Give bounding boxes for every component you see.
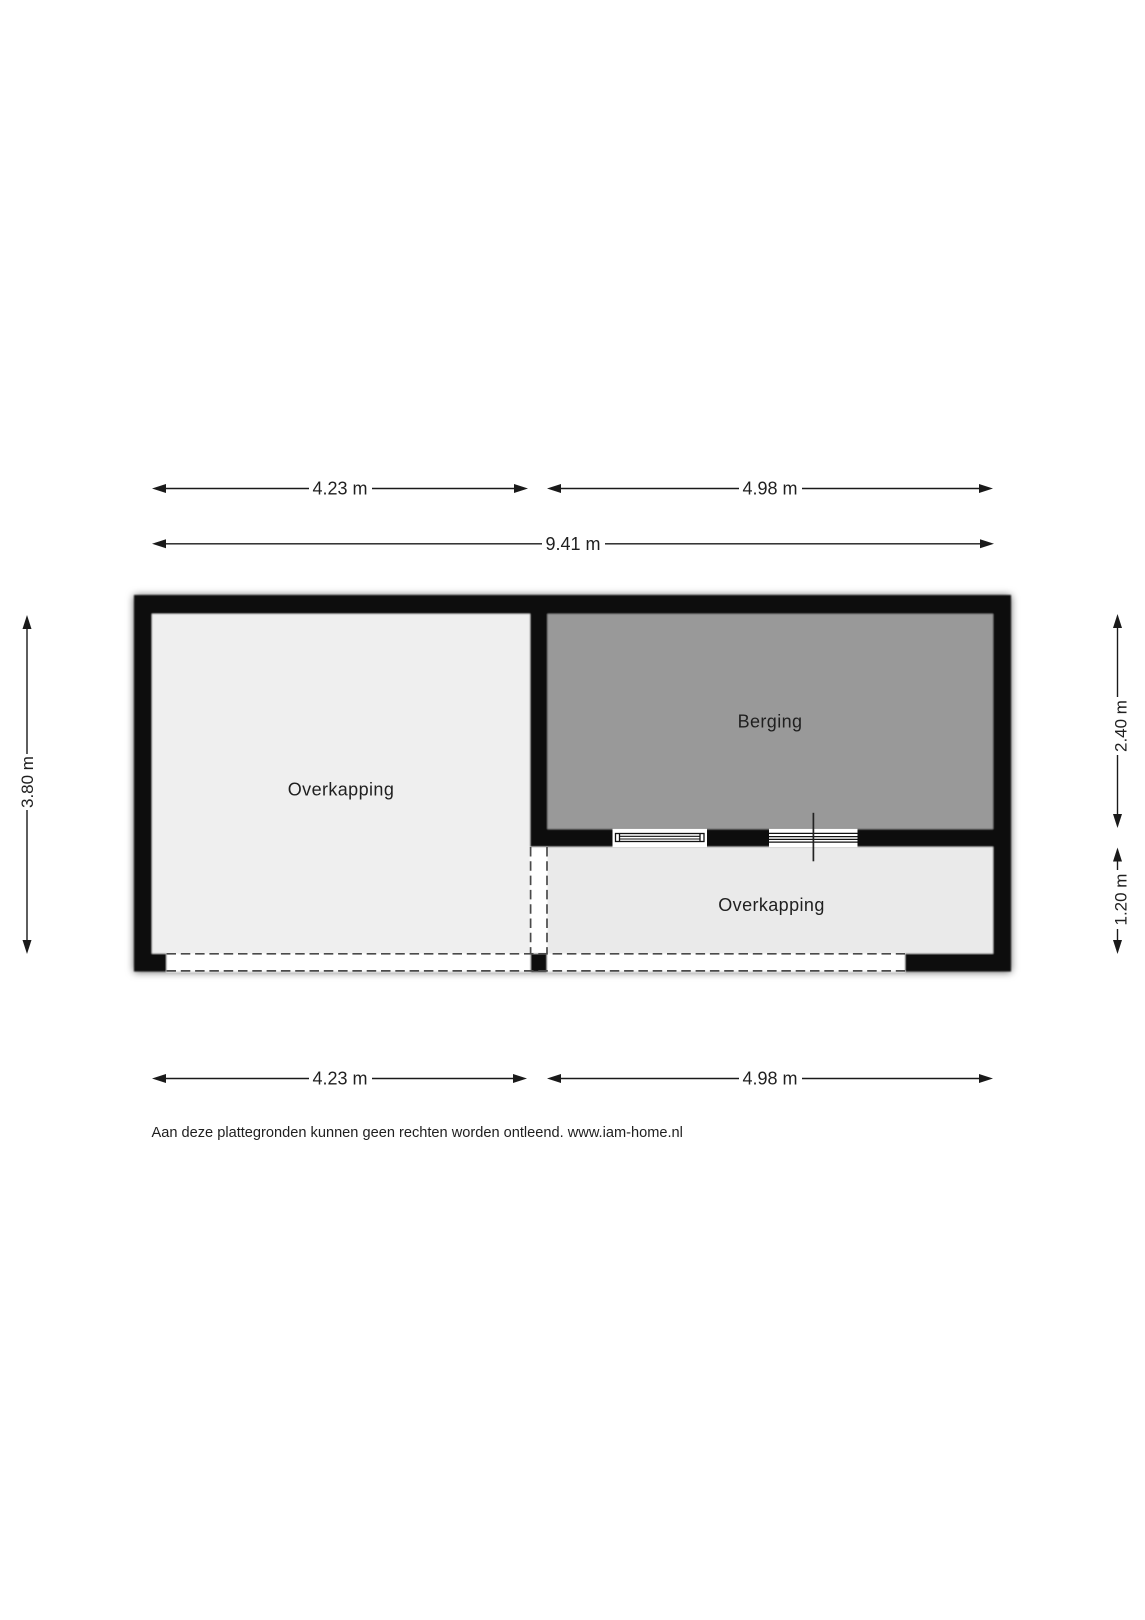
svg-text:4.23 m: 4.23 m — [312, 479, 367, 499]
svg-text:9.41 m: 9.41 m — [545, 534, 600, 554]
svg-text:1.20 m: 1.20 m — [1111, 874, 1130, 926]
svg-text:Berging: Berging — [738, 712, 803, 732]
svg-text:2.40 m: 2.40 m — [1111, 700, 1130, 752]
svg-text:4.98 m: 4.98 m — [742, 1069, 797, 1089]
svg-text:4.98 m: 4.98 m — [742, 479, 797, 499]
svg-text:Overkapping: Overkapping — [288, 780, 394, 800]
svg-text:4.23 m: 4.23 m — [312, 1069, 367, 1089]
svg-text:Overkapping: Overkapping — [718, 895, 824, 915]
svg-text:3.80 m: 3.80 m — [18, 756, 37, 808]
svg-text:Aan deze plattegronden kunnen: Aan deze plattegronden kunnen geen recht… — [152, 1125, 683, 1141]
